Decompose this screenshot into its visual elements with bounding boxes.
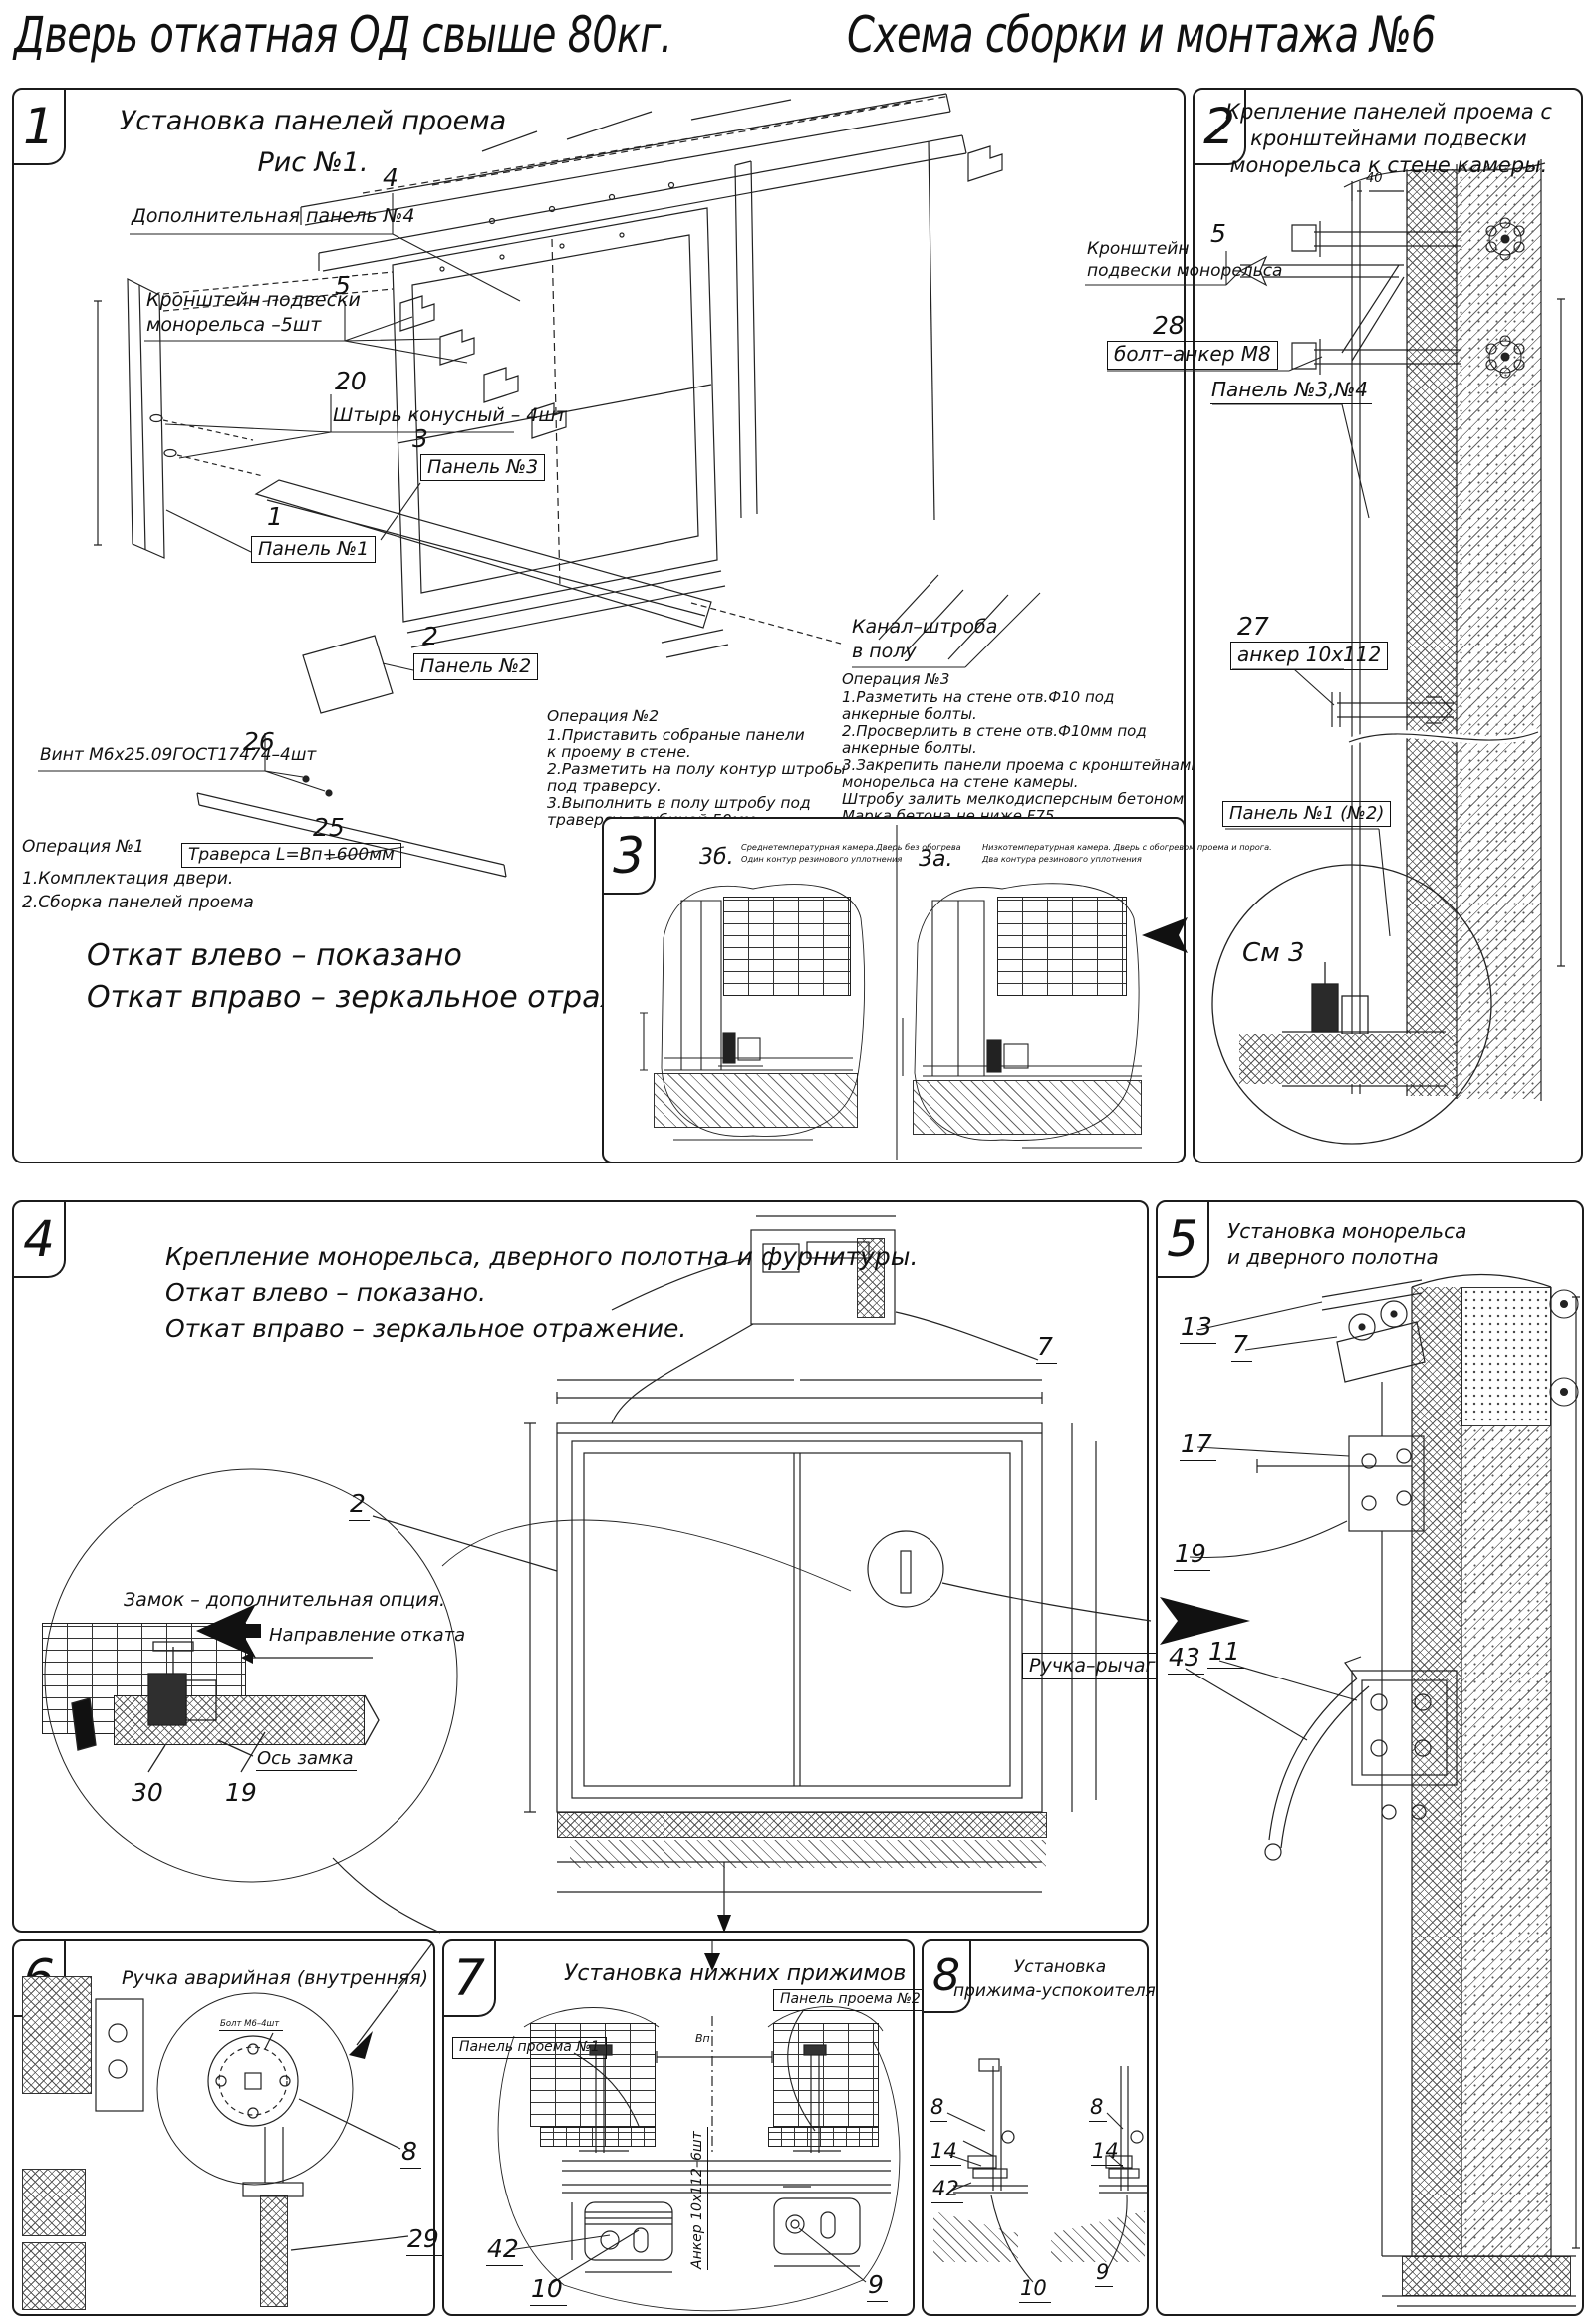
p3-fig-b-number: 3б. xyxy=(699,845,734,871)
p8-callout-14-left: 14 xyxy=(930,2139,961,2166)
p4-callout-19-number: 19 xyxy=(225,1778,257,1808)
operation-2-line1: 1.Приставить собраные панели xyxy=(547,726,805,744)
panel-4-monorail-leaf: 4 xyxy=(12,1200,1149,1933)
p5-leader-lines xyxy=(1186,1302,1357,1740)
callout-panel-1: Панель №1 xyxy=(251,536,376,563)
p4-direction-arrow-big xyxy=(196,1604,261,1658)
p7-panel2-label: Панель проема №2 xyxy=(773,1989,928,2011)
panel-4-header-line2: Откат влево – показано. xyxy=(165,1278,486,1308)
p4-callout-2-number: 2 xyxy=(349,1489,370,1521)
p7-anchor-label-vertical: Анкер 10х112–6шт xyxy=(689,2127,708,2270)
p6-callout-8: 8 xyxy=(400,2137,421,2169)
p3-fig-a-caption-line2: Два контура резинового уплотнения xyxy=(982,855,1142,865)
p3-sections xyxy=(640,825,1142,1160)
panel-3-linework xyxy=(604,819,1188,1165)
callout-screw-m6: Винт М6х25.09ГОСТ17474–4шт xyxy=(40,745,316,765)
p8-callout-9: 9 xyxy=(1095,2260,1113,2287)
p4-lock-axis-label: Ось замка xyxy=(256,1748,357,1771)
panel-6-emergency-handle: 6 Ручка аварийная (внутренняя) Болт М6–4… xyxy=(12,1939,435,2316)
operation-1-line1: 1.Комплектация двери. xyxy=(22,869,233,889)
panel-5-linework xyxy=(1158,1202,1586,2318)
p8-callout-42: 42 xyxy=(931,2177,963,2203)
panel-2-header-line2: кронштейнами подвески xyxy=(1214,127,1563,151)
p2-floor-hatch xyxy=(1239,1034,1454,1084)
p7-callout-9: 9 xyxy=(867,2270,888,2302)
p2-anchor-rosettes xyxy=(1486,218,1524,378)
p5-lever-assembly xyxy=(1265,1657,1457,1860)
operation-3-title: Операция №3 xyxy=(842,671,949,689)
operation-2-line4: под траверсу. xyxy=(547,777,662,795)
panel-4-header-line1: Крепление монорельса, дверного полотна и… xyxy=(165,1242,918,1272)
panel-7-bottom-clamps: 7 xyxy=(442,1939,915,2316)
p8-left-figure xyxy=(953,2059,1028,2193)
p2-panel12-label: Панель №1 (№2) xyxy=(1222,801,1391,827)
callout-1-number: 1 xyxy=(267,502,283,532)
operation-2-title: Операция №2 xyxy=(547,707,659,725)
p4-direction-label: Направление отката xyxy=(269,1625,465,1646)
panel-5-monorail-install: 5 xyxy=(1156,1200,1584,2316)
p7-callout-10: 10 xyxy=(530,2274,567,2306)
p7-callout-42: 42 xyxy=(486,2234,523,2266)
panel-8-header-line2: прижима-успокоителя xyxy=(953,1981,1148,2001)
panel-8-header-line1: Установка xyxy=(975,1957,1145,1977)
p4-callout-7-number: 7 xyxy=(1036,1332,1057,1364)
p2-see-detail-3: См 3 xyxy=(1242,938,1305,969)
p6-incoming-arrow xyxy=(349,2031,373,2059)
p5-callout-43: 43 xyxy=(1168,1643,1204,1675)
p2-dim-40: 40 xyxy=(1366,171,1383,186)
p5-trolley xyxy=(1322,1280,1425,1531)
callout-panel-2: Панель №2 xyxy=(413,653,538,680)
p2-callout-28-number: 28 xyxy=(1153,311,1185,341)
p2-panel34-label: Панель №3,№4 xyxy=(1210,379,1372,404)
p3-fig-a-caption-line1: Низкотемпературная камера. Дверь с обогр… xyxy=(982,843,1272,853)
panel-6-header: Ручка аварийная (внутренняя) xyxy=(122,1967,428,1989)
callout-traverse: Траверса L=Вп+600мм xyxy=(181,843,401,868)
p7-dim-vp: Вп xyxy=(695,2033,710,2046)
p6-bolt-note: Болт М6–4шт xyxy=(219,2019,283,2031)
p8-callout-8-left: 8 xyxy=(930,2095,947,2122)
operation-1-title: Операция №1 xyxy=(22,837,144,857)
callout-4-number: 4 xyxy=(383,163,398,193)
callout-3-number: 3 xyxy=(412,424,428,454)
panel-2-wall-fixing: 2 xyxy=(1193,88,1583,1163)
p6-callout-29: 29 xyxy=(406,2224,443,2256)
panel-2-header-line1: Крепление панелей проема с xyxy=(1214,100,1563,125)
drawing-sheet: Дверь откатная ОД свыше 80кг. Схема сбор… xyxy=(0,0,1594,2324)
p8-right-figure xyxy=(1099,2066,1149,2193)
callout-2-number: 2 xyxy=(422,622,438,651)
p8-callout-14-right: 14 xyxy=(1091,2139,1123,2166)
p5-anchor-rosettes xyxy=(1550,1290,1578,1406)
panel-4-linework xyxy=(14,1202,1151,1935)
p5-callout-11: 11 xyxy=(1207,1637,1244,1669)
operation-2-line3: 2.Разметить на полу контур штробы xyxy=(547,760,846,778)
callout-20-number: 20 xyxy=(335,367,367,396)
p2-bracket-label-line1: Кронштейн xyxy=(1087,239,1189,259)
p5-callout-19: 19 xyxy=(1174,1539,1210,1571)
panel-3-floor-details: 3 3б. Среднетем xyxy=(602,817,1186,1163)
p7-panel1-label: Панель проема №1 xyxy=(452,2037,607,2059)
callout-panel-3: Панель №3 xyxy=(420,454,545,481)
panel-1-header-line2: Рис №1. xyxy=(99,147,527,179)
callout-cone-pin: Штырь конусный – 4шт xyxy=(333,404,567,426)
panel-4-header-line3: Откат вправо – зеркальное отражение. xyxy=(165,1314,686,1344)
p5-callout-7: 7 xyxy=(1231,1330,1252,1362)
callout-bracket-line2: монорельса –5шт xyxy=(146,314,321,336)
p5-wall-lines xyxy=(1257,1275,1580,2307)
operation-1-line2: 2.Сборка панелей проема xyxy=(22,893,254,912)
slide-note-line1: Откат влево – показано xyxy=(87,938,462,973)
p4-lock-detail xyxy=(45,1469,457,1882)
panel-5-header-line2: и дверного полотна xyxy=(1227,1246,1439,1270)
panel-8-damper-clamp: 8 Установка прижима-ус xyxy=(922,1939,1149,2316)
p5-callout-17: 17 xyxy=(1180,1429,1216,1461)
p2-callout-5-number: 5 xyxy=(1210,219,1226,249)
p8-callout-8-right: 8 xyxy=(1089,2095,1107,2122)
callout-bracket-line1: Кронштейн подвески xyxy=(146,289,361,311)
floor-channel-label-line1: Канал–штроба xyxy=(852,616,997,638)
callout-additional-panel: Дополнительная панель №4 xyxy=(132,205,414,227)
panel-1-header-line1: Установка панелей проема xyxy=(99,106,527,137)
callout-25-number: 25 xyxy=(313,813,345,843)
p5-callout-13: 13 xyxy=(1180,1312,1216,1344)
p2-anchor-label: анкер 10х112 xyxy=(1230,642,1388,670)
p4-handle-lever-label: Ручка–рычаг xyxy=(1022,1653,1162,1679)
p4-callout-30-number: 30 xyxy=(132,1778,163,1808)
sheet-title-left: Дверь откатная ОД свыше 80кг. xyxy=(14,6,671,65)
p4-lock-option-label: Замок – дополнительная опция. xyxy=(124,1589,445,1611)
p3-detail-arrow xyxy=(1142,917,1188,953)
p4-leader-arrow-down xyxy=(717,1915,731,1933)
panel-2-header-line3: монорельса к стене камеры. xyxy=(1214,153,1563,178)
p8-callout-10: 10 xyxy=(1019,2276,1051,2303)
operation-2-line5: 3.Выполнить в полу штробу под xyxy=(547,794,811,812)
panel-5-header-line1: Установка монорельса xyxy=(1227,1220,1466,1244)
panel-7-header: Установка нижних прижимов xyxy=(564,1961,843,1987)
operation-2-line2: к проему в стене. xyxy=(547,743,691,761)
sheet-title-right: Схема сборки и монтажа №6 xyxy=(847,6,1436,65)
p3-fig-b-caption-line2: Один контур резинового уплотнения xyxy=(741,855,902,865)
p2-anchor-bolt-label: болт–анкер М8 xyxy=(1107,341,1278,370)
p2-bracket-label-line2: подвески монорельса xyxy=(1087,261,1282,281)
panel-6-linework xyxy=(14,1941,437,2318)
p2-callout-27-number: 27 xyxy=(1237,612,1269,642)
p3-fig-a-number: 3а. xyxy=(919,847,952,873)
floor-channel-label-line2: в полу xyxy=(852,641,917,662)
